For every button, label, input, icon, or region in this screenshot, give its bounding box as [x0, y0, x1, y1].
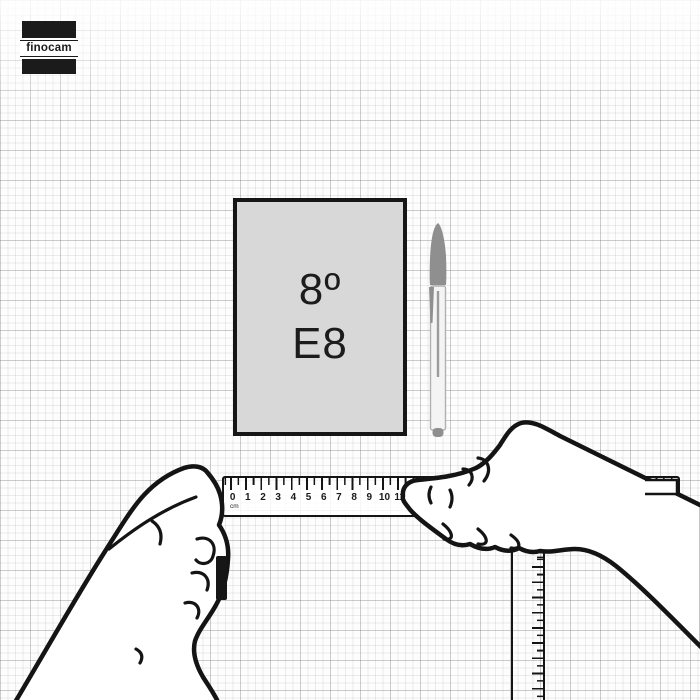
left-hand-illustration	[14, 466, 228, 700]
hands-illustration	[0, 0, 700, 700]
left-hand-outline	[14, 466, 228, 700]
product-illustration: finocam 8º E8 0123456789101112 cm	[0, 0, 700, 700]
right-hand-outline	[403, 422, 700, 648]
ruler-left-end-edge	[216, 556, 227, 600]
ruler-right-end	[645, 480, 677, 494]
right-hand-illustration	[403, 422, 700, 648]
